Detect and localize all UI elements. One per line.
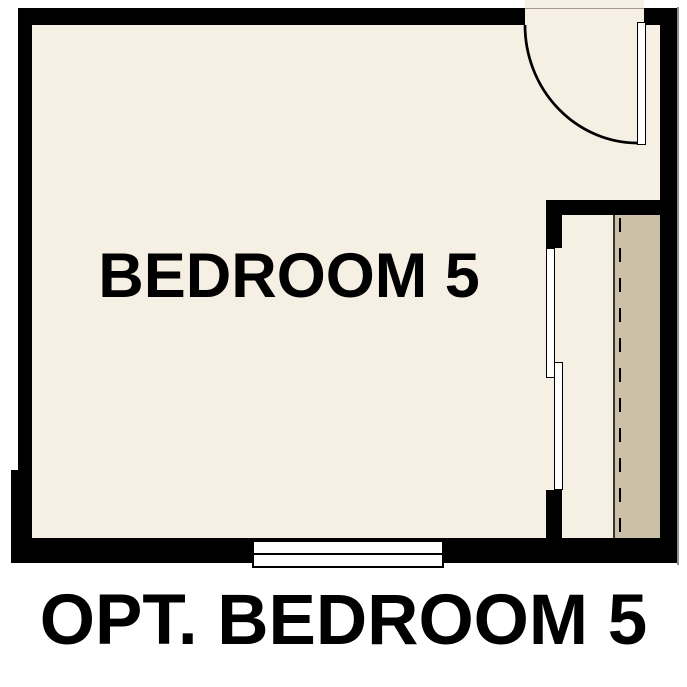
wall-top-left (18, 8, 525, 25)
window-midline (254, 553, 442, 555)
wall-left-upper (18, 8, 32, 475)
floorplan-canvas: BEDROOM 5 OPT. BEDROOM 5 (0, 0, 687, 687)
wall-right (660, 8, 677, 563)
sliding-door-panel-left (546, 248, 555, 378)
wall-left-lower (11, 470, 32, 563)
door-header-line (525, 8, 644, 9)
closet-wall-top (546, 200, 660, 215)
closet-wall-stub-top (546, 215, 562, 248)
door-opening (525, 0, 644, 25)
room-label: BEDROOM 5 (32, 245, 546, 308)
right-edge-line (677, 7, 679, 565)
closet-rod-dashed-line (619, 218, 621, 538)
closet-wall-stub-bottom (546, 490, 562, 538)
door-leaf (637, 22, 646, 145)
plan-caption: OPT. BEDROOM 5 (0, 585, 687, 656)
window (252, 540, 444, 568)
sliding-door-panel-right (554, 362, 563, 490)
